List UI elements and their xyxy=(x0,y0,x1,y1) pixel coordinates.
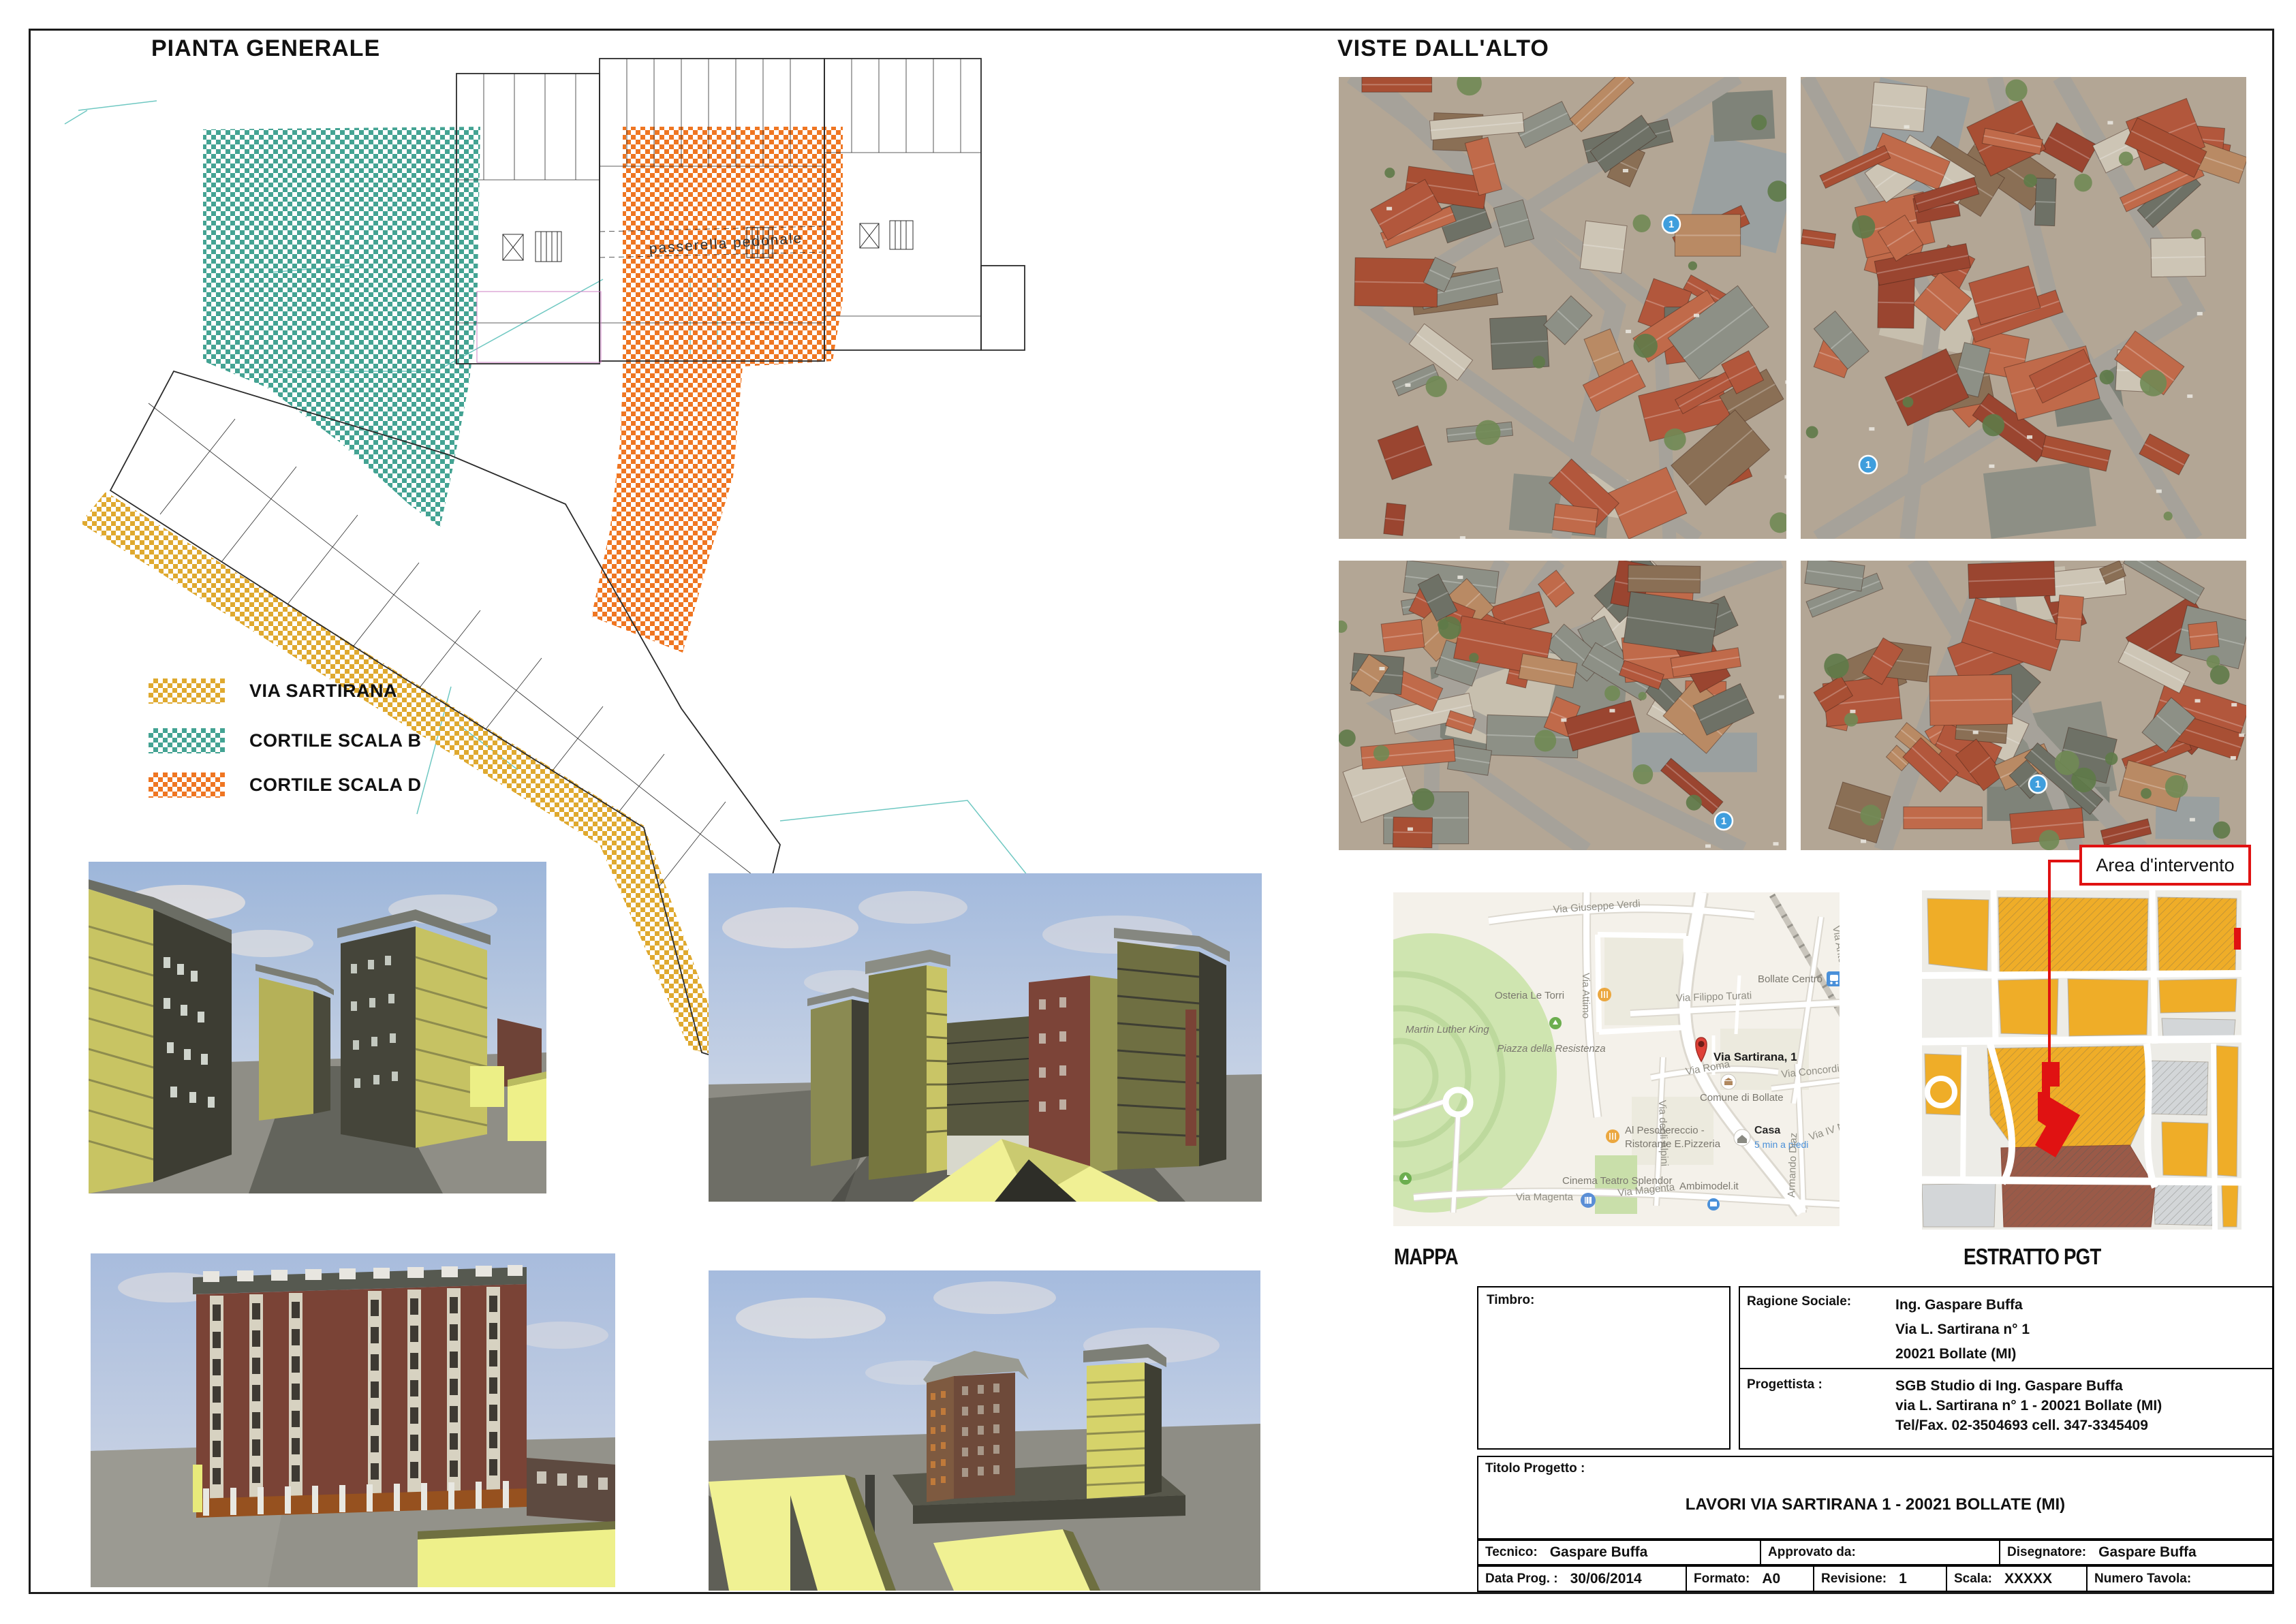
place-label: Martin Luther King xyxy=(1406,1024,1489,1035)
svg-text:1: 1 xyxy=(1669,219,1674,230)
render-view-3 xyxy=(91,1253,615,1587)
progettista-line: via L. Sartirana n° 1 - 20021 Bollate (M… xyxy=(1895,1396,2162,1416)
place-label: Comune di Bollate xyxy=(1700,1092,1784,1104)
approvato-label: Approvato da: xyxy=(1768,1545,1856,1560)
legend-item-cortile-b: CORTILE SCALA B xyxy=(149,728,422,753)
legend-label-cortile-d: CORTILE SCALA D xyxy=(249,775,422,796)
legend-label-cortile-b: CORTILE SCALA B xyxy=(249,730,422,751)
legend-swatch-cortile-d xyxy=(149,772,225,798)
street-label: Via Attimo xyxy=(1580,973,1592,1018)
svg-text:1: 1 xyxy=(1721,815,1726,827)
pgt-red-edge-mark xyxy=(2234,928,2241,950)
aerial-photo-4: 1 xyxy=(1801,561,2246,850)
town-hall-icon xyxy=(1721,1074,1736,1089)
place-label: Ambimodel.it xyxy=(1679,1181,1739,1192)
timbro-label: Timbro: xyxy=(1478,1287,1729,1313)
location-marker-icon: 1 xyxy=(1715,812,1733,830)
aerial-photo-2: 1 xyxy=(1801,77,2246,539)
revisione-value: 1 xyxy=(1899,1571,1907,1587)
tecnico-label: Tecnico: xyxy=(1485,1545,1538,1560)
tree-icon xyxy=(1549,1017,1562,1029)
restaurant-icon xyxy=(1598,988,1611,1001)
ragione-line: 20021 Bollate (MI) xyxy=(1895,1342,2030,1367)
scala-label: Scala: xyxy=(1954,1572,1992,1587)
tree-icon xyxy=(1399,1172,1412,1185)
approval-row: Tecnico: Gaspare Buffa Approvato da: Dis… xyxy=(1477,1540,2274,1565)
project-title-box: Titolo Progetto : LAVORI VIA SARTIRANA 1… xyxy=(1477,1456,2274,1540)
revision-row: Data Prog. : 30/06/2014 Formato: A0 Revi… xyxy=(1477,1565,2274,1592)
legend-item-via-sartirana: VIA SARTIRANA xyxy=(149,678,397,704)
legend-swatch-cortile-b xyxy=(149,728,225,753)
progettista-label: Progettista : xyxy=(1740,1369,1895,1435)
titolo-progetto-label: Titolo Progetto : xyxy=(1478,1457,2272,1476)
mappa-title: MAPPA xyxy=(1394,1244,1458,1270)
legend-item-cortile-d: CORTILE SCALA D xyxy=(149,772,422,798)
cortile-scala-b-zone xyxy=(203,127,480,527)
place-label: Piazza della Resistenza xyxy=(1497,1043,1605,1055)
company-box: Ragione Sociale: Ing. Gaspare Buffa Via … xyxy=(1739,1286,2274,1450)
revisione-label: Revisione: xyxy=(1821,1572,1887,1587)
cortile-scala-d-zone xyxy=(591,127,843,653)
numero-tavola-label: Numero Tavola: xyxy=(2094,1572,2191,1587)
project-title: LAVORI VIA SARTIRANA 1 - 20021 BOLLATE (… xyxy=(1478,1495,2272,1514)
plan-reference-rect xyxy=(477,292,601,362)
area-intervento-label: Area d'intervento xyxy=(2096,855,2234,876)
formato-value: A0 xyxy=(1762,1571,1780,1587)
business-icon xyxy=(1707,1198,1720,1211)
street-label: Armando Diaz xyxy=(1786,1133,1799,1198)
ragione-line: Via L. Sartirana n° 1 xyxy=(1895,1317,2030,1342)
legend-swatch-via-sartirana xyxy=(149,678,225,704)
location-marker-icon: 1 xyxy=(1859,456,1877,473)
render-view-4 xyxy=(709,1270,1260,1591)
location-marker-icon: 1 xyxy=(1662,215,1680,233)
location-marker-icon: 1 xyxy=(2029,775,2047,793)
place-label: Osteria Le Torri xyxy=(1495,990,1564,1001)
ragione-line: Ing. Gaspare Buffa xyxy=(1895,1293,2030,1317)
scala-value: XXXXX xyxy=(2004,1571,2052,1587)
viste-dallalto-title: VISTE DALL'ALTO xyxy=(1337,35,1549,62)
callout-line-vertical xyxy=(2048,861,2051,1066)
ragione-sociale-label: Ragione Sociale: xyxy=(1740,1287,1895,1368)
aerial-photo-1: 1 xyxy=(1339,77,1786,539)
place-label: Bollate Centro xyxy=(1758,973,1822,985)
home-icon xyxy=(1734,1129,1750,1146)
svg-text:1: 1 xyxy=(2035,779,2041,790)
train-station-icon xyxy=(1827,971,1840,986)
walk-time-label: 5 min a piedi xyxy=(1754,1139,1808,1150)
legend-label-via-sartirana: VIA SARTIRANA xyxy=(249,681,397,702)
pgt-map xyxy=(1922,890,2241,1230)
formato-label: Formato: xyxy=(1694,1572,1750,1587)
data-prog-label: Data Prog. : xyxy=(1485,1572,1558,1587)
svg-text:1: 1 xyxy=(1865,459,1871,471)
data-prog-value: 30/06/2014 xyxy=(1570,1571,1642,1587)
google-map: Via Giuseppe Verdi Via Attimo Osteria Le… xyxy=(1393,892,1840,1226)
disegnatore-value: Gaspare Buffa xyxy=(2098,1544,2197,1561)
place-label: Ristorante E.Pizzeria xyxy=(1625,1138,1721,1150)
cinema-icon xyxy=(1581,1193,1596,1208)
render-view-2 xyxy=(709,873,1262,1202)
render-view-1 xyxy=(89,862,546,1193)
area-intervento-box: Area d'intervento xyxy=(2079,845,2251,886)
place-label: Al Peschereccio - xyxy=(1625,1125,1705,1136)
disegnatore-label: Disegnatore: xyxy=(2007,1545,2086,1560)
restaurant-icon xyxy=(1606,1129,1619,1143)
progettista-line: SGB Studio di Ing. Gaspare Buffa xyxy=(1895,1376,2162,1396)
street-label: Via Magenta xyxy=(1516,1191,1574,1203)
aerial-photo-3: 1 xyxy=(1339,561,1786,850)
tecnico-value: Gaspare Buffa xyxy=(1550,1544,1648,1561)
place-label: Casa xyxy=(1754,1125,1780,1136)
callout-line-horizontal xyxy=(2048,860,2081,862)
timbro-box: Timbro: xyxy=(1477,1286,1731,1450)
progettista-line: Tel/Fax. 02-3504693 cell. 347-3345409 xyxy=(1895,1416,2162,1435)
estratto-pgt-title: ESTRATTO PGT xyxy=(1964,1244,2100,1270)
